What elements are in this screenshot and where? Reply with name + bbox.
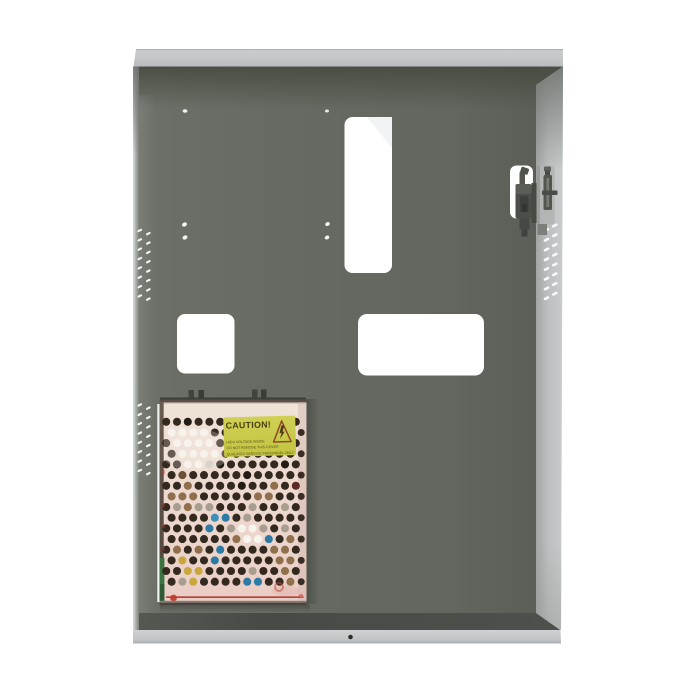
svg-text:CAUTION!: CAUTION! [225, 419, 271, 430]
